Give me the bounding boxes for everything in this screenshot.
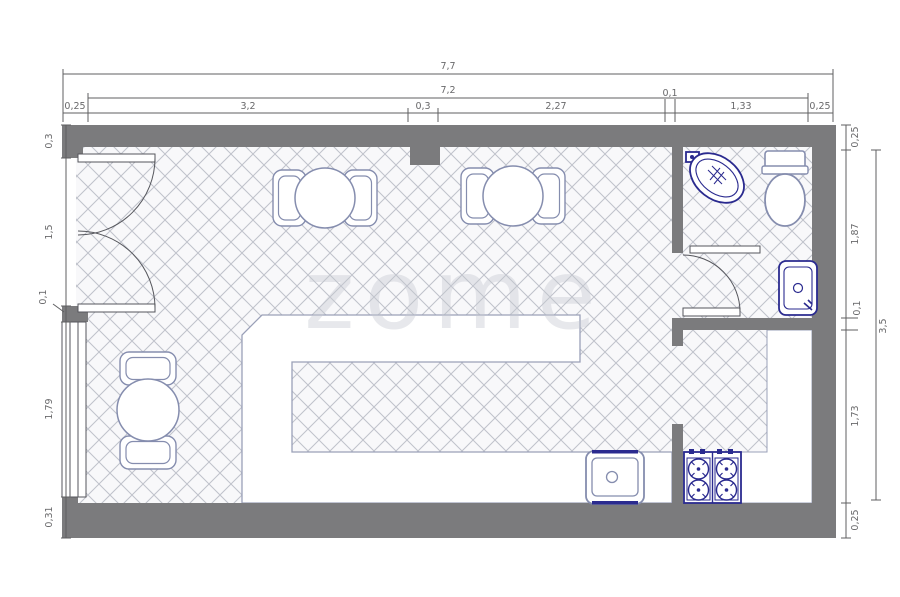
dim-right-seg-3: 1,73	[850, 405, 861, 426]
floor-plan-canvas: zome	[0, 0, 900, 597]
dim-left-seg-2: 0,1	[38, 289, 49, 304]
wall-left-bottom	[62, 497, 78, 538]
washbasin	[779, 261, 817, 315]
wall-left-top	[62, 125, 83, 158]
dim-top-inner: 7,2	[440, 85, 455, 96]
dim-top-seg-5: 1,33	[730, 101, 751, 112]
dim-top-seg-2: 0,3	[415, 101, 430, 112]
dim-right-total: 3,5	[878, 318, 889, 333]
wall-kitchen-vertical	[672, 424, 683, 503]
dim-right-seg-1: 1,87	[850, 223, 861, 244]
watermark: zome	[304, 239, 606, 351]
kitchen-sink	[586, 450, 644, 505]
dim-right-seg-0: 0,25	[850, 126, 861, 147]
dim-top-seg-0: 0,25	[64, 101, 85, 112]
dim-left-seg-1: 1,5	[44, 224, 55, 239]
dim-top-total: 7,7	[440, 61, 455, 72]
wc-partition	[690, 246, 760, 253]
round-table	[295, 168, 355, 228]
wall-top	[62, 125, 836, 147]
dining-set-2	[461, 166, 565, 226]
dim-right-seg-4: 0,25	[850, 509, 861, 530]
door-leaf-top	[78, 154, 155, 162]
gas-stove	[684, 449, 741, 503]
wall-wc-vertical	[672, 147, 683, 253]
wall-right	[812, 125, 836, 538]
dining-set-1	[273, 168, 377, 228]
wall-bottom	[62, 503, 836, 538]
wall-kitchen-stub-top	[672, 318, 683, 346]
dim-right-seg-2: 0,1	[852, 300, 863, 315]
kitchen-room-floor	[683, 330, 767, 452]
wall-pier	[410, 147, 440, 165]
dim-top-seg-1: 3,2	[240, 101, 255, 112]
wall-wc-horizontal	[672, 318, 812, 330]
toilet	[762, 151, 808, 226]
round-table	[483, 166, 543, 226]
round-table	[117, 379, 179, 441]
floor-plan-drawing: zome	[0, 0, 900, 597]
dining-set-3	[117, 352, 179, 469]
dim-left-seg-4: 0,31	[44, 506, 55, 527]
dim-top-seg-3: 2,27	[545, 101, 566, 112]
dim-top-seg-6: 0,25	[809, 101, 830, 112]
door-leaf-bottom	[78, 304, 155, 312]
door-leaf	[683, 308, 740, 316]
dim-top-seg-4: 0,1	[662, 88, 677, 99]
dim-left-seg-0: 0,3	[44, 133, 55, 148]
dim-left-seg-3: 1,79	[44, 398, 55, 419]
